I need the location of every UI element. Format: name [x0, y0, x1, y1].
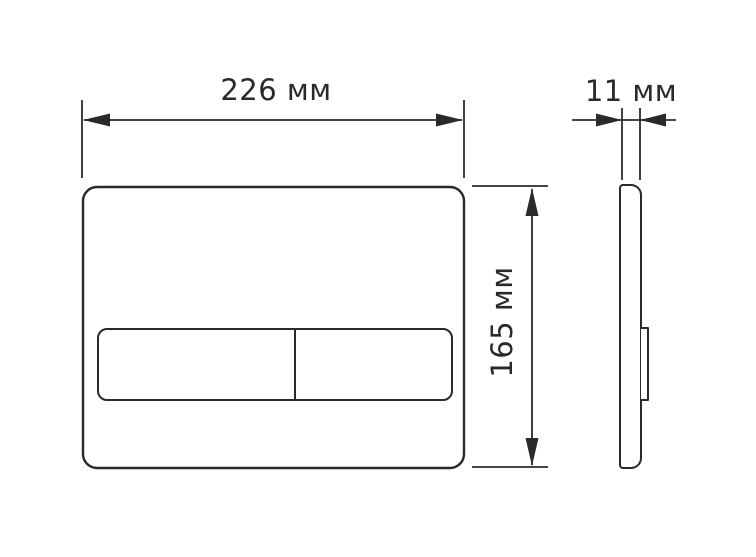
height-dimension-label: 165 мм [485, 266, 519, 377]
width-dimension-label: 226 мм [220, 73, 331, 107]
button-side-profile [641, 328, 648, 400]
plate-side-outline [620, 185, 641, 468]
depth-arrowhead-right-icon [640, 114, 666, 127]
button-panel-outline [98, 329, 452, 400]
drawing-svg: 226 мм 11 мм 165 мм [0, 0, 756, 557]
depth-dimension: 11 мм [572, 74, 677, 180]
flush-plate-dimension-drawing: 226 мм 11 мм 165 мм [0, 0, 756, 557]
plate-front-outline [83, 187, 464, 468]
depth-arrowhead-left-icon [596, 114, 622, 127]
height-arrowhead-bottom-icon [526, 438, 539, 466]
depth-dimension-label: 11 мм [585, 74, 677, 108]
width-dimension: 226 мм [82, 73, 464, 178]
height-arrowhead-top-icon [526, 188, 539, 216]
front-view [83, 187, 464, 468]
side-view [620, 185, 648, 468]
height-dimension: 165 мм [472, 186, 548, 467]
width-arrowhead-right-icon [436, 114, 463, 127]
width-arrowhead-left-icon [83, 114, 110, 127]
